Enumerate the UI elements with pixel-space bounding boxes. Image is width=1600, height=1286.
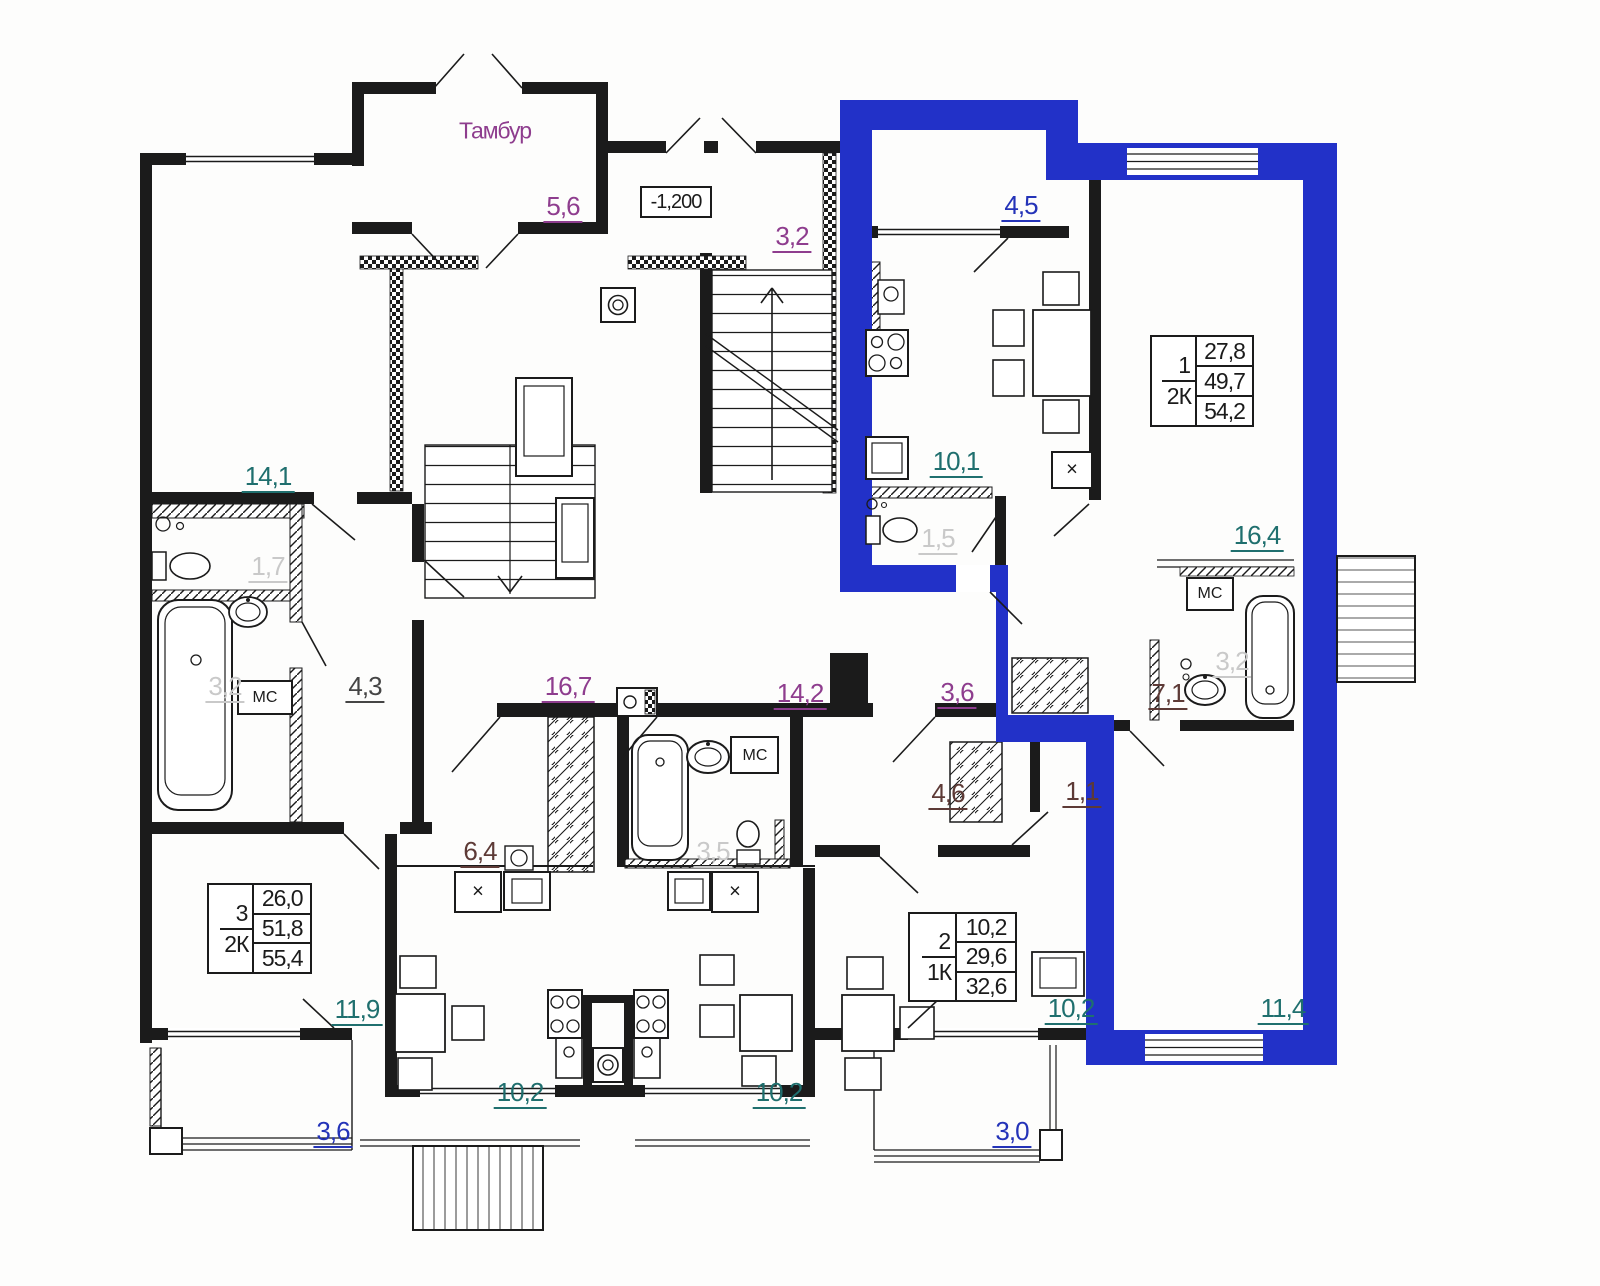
area-label-hall-apt3: 6,4 — [460, 838, 499, 868]
area-label-stairwell: 3,2 — [772, 223, 811, 253]
apartment-number: 1 — [1162, 352, 1195, 382]
toilet-apt1-icon — [883, 518, 917, 542]
area-label-corridor-right: 14,2 — [774, 680, 827, 710]
chair-icon — [700, 955, 734, 985]
apartment-info-box-2: 2 1К 10,2 29,6 32,6 — [908, 912, 1017, 1002]
area-label-room-left-top: 14,1 — [242, 463, 295, 493]
storage-label-center: МС — [743, 747, 768, 765]
chair-icon — [847, 957, 883, 989]
area-label-hall-apt2: 4,6 — [928, 780, 967, 810]
area-label-bath-left: 3,2 — [205, 673, 244, 703]
apartment-living-area: 10,2 — [957, 914, 1015, 943]
elevation-mark: -1,200 — [640, 186, 712, 218]
chair-icon — [1043, 400, 1079, 433]
area-label-corridor-small: 3,6 — [937, 679, 976, 709]
area-label-corridor-left: 16,7 — [542, 673, 595, 703]
area-label-kitchen-apt1: 10,1 — [930, 448, 983, 478]
storage-label-right: МС — [1198, 585, 1223, 603]
apartment-usable-area: 49,7 — [1197, 367, 1252, 397]
area-label-balcony-left: 3,6 — [313, 1118, 352, 1148]
apartment-total-area: 54,2 — [1197, 397, 1252, 425]
area-label-bath-apt1: 3,2 — [1212, 648, 1251, 678]
apartment-number: 2 — [922, 928, 955, 958]
chair-icon — [1043, 272, 1079, 305]
apartment-rooms-type: 1К — [927, 958, 955, 986]
area-label-hall-left: 4,3 — [345, 673, 384, 703]
chair-icon — [900, 1007, 934, 1039]
table-icon — [740, 995, 792, 1051]
toilet-left-icon — [170, 553, 210, 579]
apartment-usable-area: 51,8 — [254, 915, 310, 945]
chair-icon — [845, 1058, 881, 1090]
vestibule-label: Тамбур — [459, 120, 531, 143]
area-label-kitchen-left: 10,2 — [494, 1079, 547, 1109]
chair-icon — [993, 310, 1024, 346]
fridge-mark-apt1: × — [1066, 459, 1078, 482]
chair-icon — [452, 1006, 484, 1040]
area-label-room-apt1-bottom: 11,4 — [1258, 995, 1309, 1025]
apartment-usable-area: 29,6 — [957, 943, 1015, 972]
area-label-hall-apt1: 7,1 — [1148, 680, 1187, 710]
table-icon — [842, 995, 894, 1051]
area-label-closet-apt2: 1,1 — [1062, 778, 1101, 808]
wardrobe-apt1-icon — [1012, 658, 1088, 713]
fridge-mark-left: × — [472, 881, 484, 904]
floor-plan: Тамбур 5,6 3,2 4,5 10,1 1,5 16,4 14,1 1,… — [0, 0, 1600, 1286]
walls — [140, 82, 1294, 1097]
area-label-bath-center: 3,5 — [693, 838, 732, 868]
area-label-room-left-bottom: 11,9 — [332, 996, 383, 1026]
apartment-number: 3 — [220, 900, 253, 930]
apartment-info-box-1: 1 2К 27,8 49,7 54,2 — [1150, 335, 1254, 427]
fridge-mark-center: × — [729, 881, 741, 904]
area-label-wc-left: 1,7 — [248, 553, 287, 583]
steps-right-icon — [1337, 556, 1415, 682]
apartment-living-area: 27,8 — [1197, 337, 1252, 367]
apartment-rooms-type: 2К — [224, 930, 252, 958]
chair-icon — [993, 360, 1024, 396]
wardrobe-center-icon — [548, 717, 594, 872]
chair-icon — [398, 1058, 432, 1090]
area-label-living-apt1: 16,4 — [1231, 522, 1284, 552]
area-label-balcony-right: 3,0 — [992, 1118, 1031, 1148]
apartment-rooms-type: 2К — [1167, 382, 1195, 410]
table-icon — [1033, 310, 1091, 396]
apartment-info-box-3: 3 2К 26,0 51,8 55,4 — [207, 883, 312, 974]
toilet-center-icon — [737, 821, 759, 847]
apartment-total-area: 32,6 — [957, 973, 1015, 1000]
storage-label-left: МС — [253, 689, 278, 707]
porch-bottom-icon — [413, 1146, 543, 1230]
apartment-living-area: 26,0 — [254, 885, 310, 915]
area-label-vestibule: 5,6 — [543, 193, 582, 223]
bathroom-fixtures — [152, 499, 1294, 864]
table-icon — [395, 994, 445, 1052]
area-label-kitchen-apt2: 10,2 — [1045, 995, 1098, 1025]
chair-icon — [700, 1005, 734, 1037]
area-label-balcony-top: 4,5 — [1001, 192, 1040, 222]
chair-icon — [400, 956, 436, 988]
apartment-total-area: 55,4 — [254, 944, 310, 972]
area-label-kitchen-center: 10,2 — [753, 1079, 806, 1109]
area-label-wc-apt1: 1,5 — [918, 525, 957, 555]
